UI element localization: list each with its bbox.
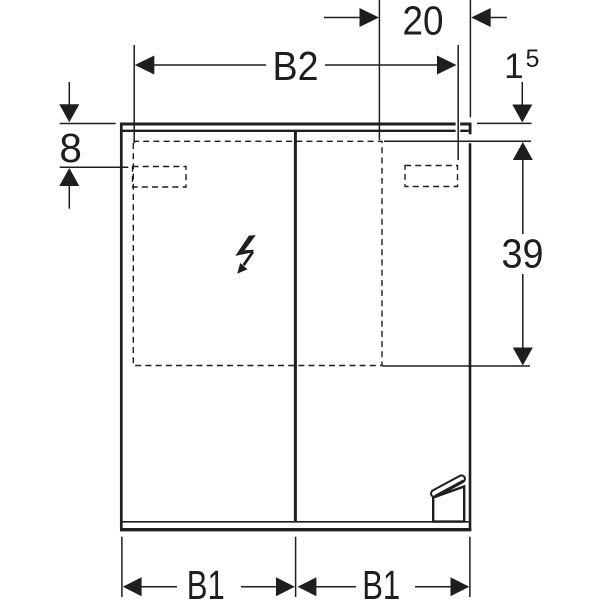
- svg-text:5: 5: [526, 45, 540, 73]
- svg-text:B1: B1: [187, 562, 225, 600]
- svg-text:B2: B2: [273, 43, 319, 89]
- svg-text:1: 1: [504, 47, 523, 86]
- svg-text:20: 20: [403, 0, 444, 44]
- svg-text:39: 39: [502, 231, 544, 277]
- svg-text:B1: B1: [362, 562, 400, 600]
- svg-text:8: 8: [59, 125, 82, 171]
